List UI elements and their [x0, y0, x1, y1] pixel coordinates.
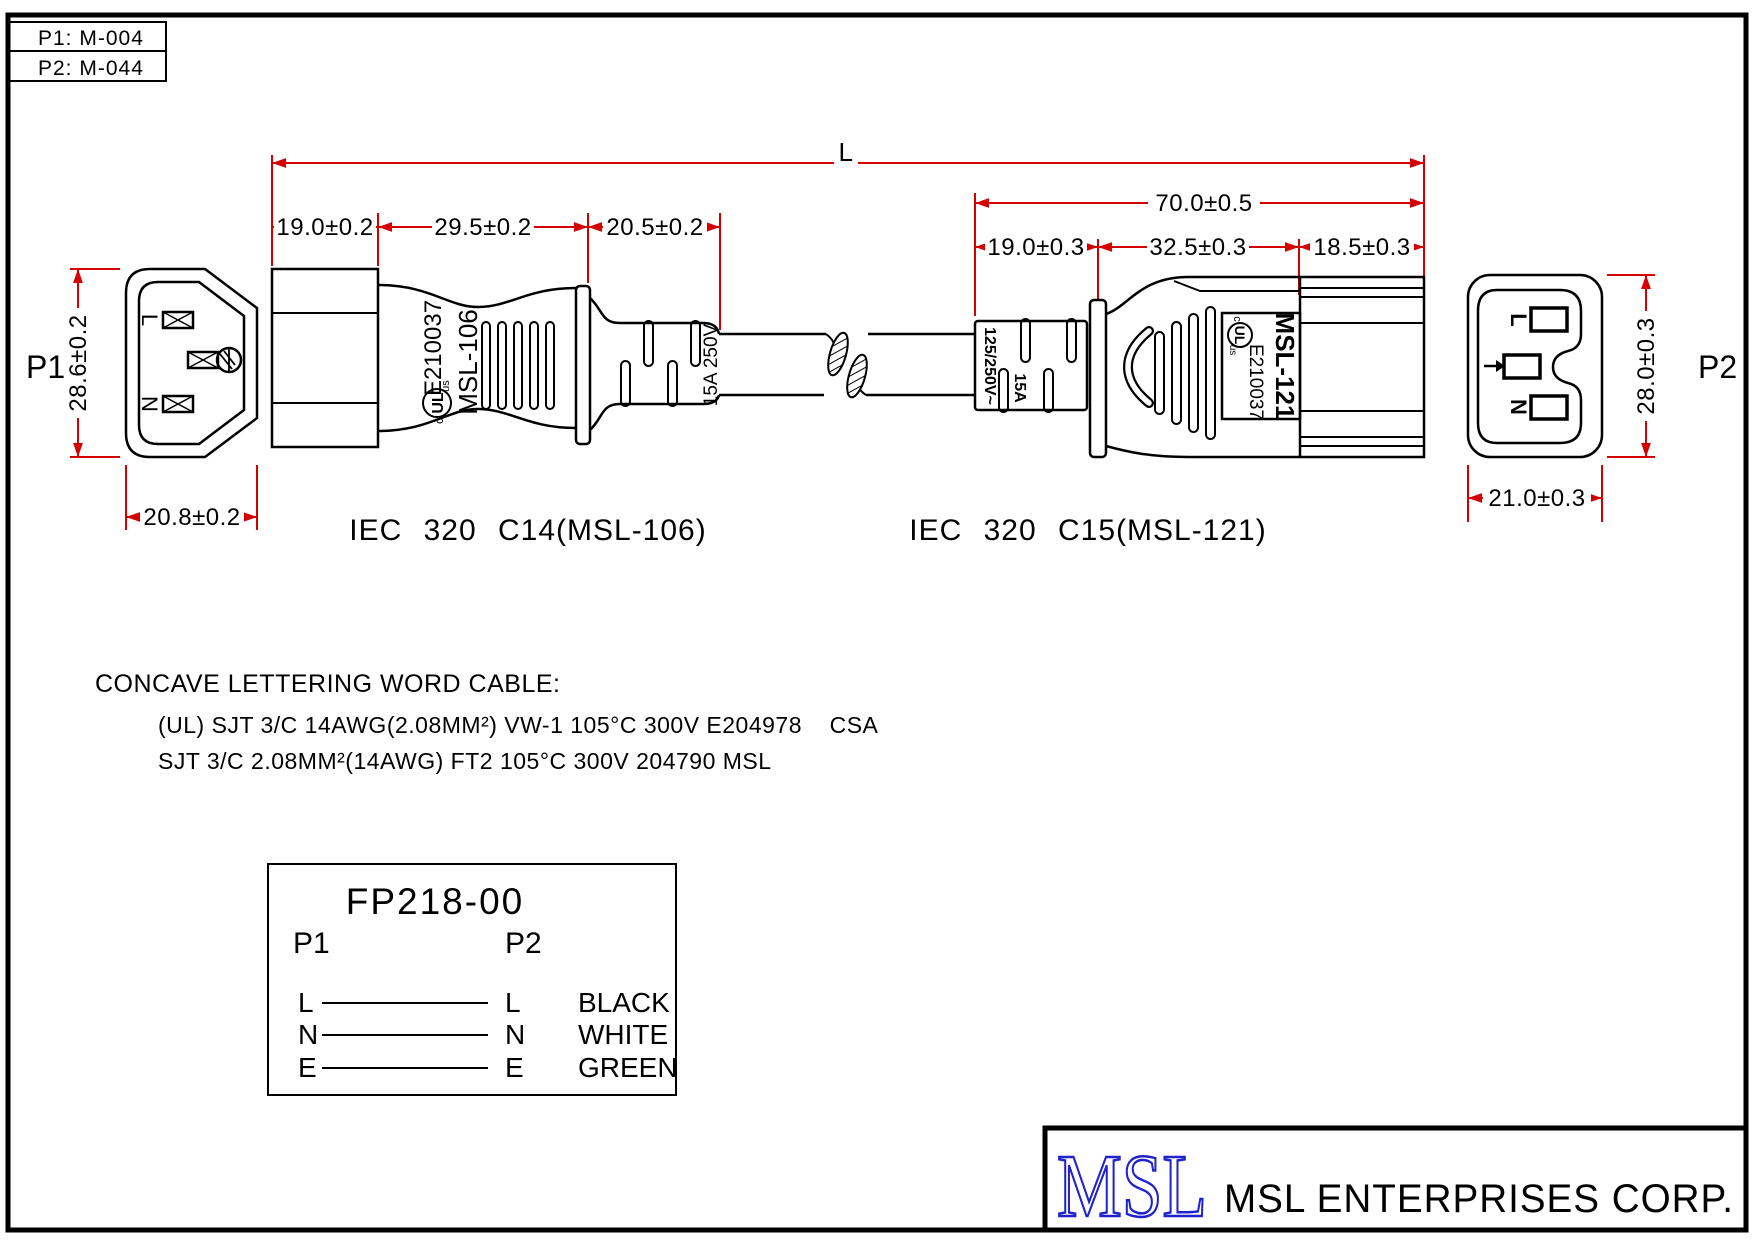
c15-face-lines [1300, 288, 1424, 446]
c15-cert-marking: E210037 [1245, 344, 1266, 420]
cable-lettering-note: CONCAVE LETTERING WORD CABLE: (UL) SJT 3… [95, 670, 879, 774]
c15-strain-slot [1021, 319, 1030, 362]
p2-pin-label-neutral: N [1506, 399, 1531, 415]
p1-ref-text: P1: M-004 [38, 27, 144, 50]
wiring-color: BLACK [578, 987, 670, 1018]
dim-p2-height-group: 28.0±0.3 [1633, 311, 1660, 421]
dim-c15-seg2: 32.5±0.3 [1149, 234, 1246, 261]
c14-grip-rib [530, 322, 538, 409]
wiring-col1-header: P1 [293, 927, 330, 960]
c15-grip-rib [1155, 332, 1164, 414]
p1-pin-label-live: L [137, 314, 162, 326]
p2-ref-text: P2: M-044 [38, 57, 144, 80]
p2-face-view: P2 L N [1468, 275, 1737, 457]
p2-hole-live [1531, 308, 1567, 331]
c15-grip-rib [1172, 322, 1181, 424]
company-name: MSL ENTERPRISES CORP. [1224, 1177, 1734, 1221]
c14-rating-marking: 15A 250V [701, 323, 722, 406]
wiring-to: E [505, 1052, 524, 1083]
c14-grip-rib [514, 322, 522, 409]
dim-c15-overall: 70.0±0.5 [1155, 190, 1252, 217]
c15-mating-face [1300, 277, 1424, 457]
c14-face-lines [272, 313, 378, 403]
ul-us-text: us [1227, 345, 1238, 356]
dim-c15-seg3: 18.5±0.3 [1313, 234, 1410, 261]
wiring-color: GREEN [578, 1052, 678, 1083]
wiring-col2-header: P2 [505, 927, 542, 960]
dim-c14-seg2: 29.5±0.2 [434, 214, 531, 241]
wiring-row-live: L L BLACK [298, 987, 670, 1018]
dim-c14-seg1: 19.0±0.2 [276, 214, 373, 241]
c15-grip-rib [1189, 314, 1198, 432]
c15-rating-voltage-marking: 125/250V~ [981, 327, 998, 405]
c15-plug-side-view: 125/250V~ 15A c UL us E210037 MSL-121 [975, 277, 1424, 457]
p1-pin-label-neutral: N [137, 396, 162, 412]
c14-strain-slot [644, 321, 653, 366]
cable-note-line1: (UL) SJT 3/C 14AWG(2.08MM²) VW-1 105°C 3… [158, 712, 879, 738]
c15-strain-slot [999, 369, 1008, 412]
c15-model-marking: MSL-121 [1270, 313, 1300, 420]
drawing-sheet: P1: M-004 P2: M-044 L 70.0±0.5 19.0±0.2 … [0, 0, 1754, 1240]
ul-core-text: UL [1232, 326, 1248, 345]
part-reference-block: P1: M-004 P2: M-044 [8, 22, 166, 81]
c15-parting-line [1174, 281, 1300, 291]
dimension-lines: L 70.0±0.5 19.0±0.2 29.5±0.2 20.5±0.2 19… [65, 137, 1660, 531]
earth-symbol-icon [217, 348, 241, 372]
c15-grip-rib [1206, 307, 1215, 439]
p1-outer-outline [126, 269, 257, 457]
ground-arrow-icon [1484, 360, 1505, 372]
p1-label: P1 [26, 349, 65, 385]
cable-break-icon [824, 331, 871, 400]
c14-grip-rib [546, 322, 554, 409]
c14-strain-slot [691, 321, 700, 366]
c14-flange [576, 286, 590, 444]
dim-p1-height-group: 28.6±0.2 [65, 308, 92, 418]
c14-strain-slot [668, 361, 677, 406]
wiring-table: FP218-00 P1 P2 L L BLACK N N WHITE E E G… [268, 864, 678, 1095]
c15-body-top [1106, 277, 1300, 314]
wiring-row-neutral: N N WHITE [298, 1019, 668, 1050]
ul-core-text: UL [430, 392, 447, 414]
p2-pin-label-live: L [1506, 313, 1531, 326]
c15-flange [1090, 300, 1106, 457]
part-number: FP218-00 [346, 881, 525, 922]
ul-us-text: us [440, 380, 452, 392]
wiring-from: N [298, 1019, 318, 1050]
c15-strain-slot [1044, 369, 1053, 412]
p1-face-view: P1 L N [26, 269, 257, 457]
ul-c-text: c [432, 418, 446, 424]
c15-strain-slot [1067, 319, 1076, 362]
wiring-from: L [298, 987, 314, 1018]
ul-c-text: c [1231, 316, 1243, 322]
cable-note-title: CONCAVE LETTERING WORD CABLE: [95, 670, 561, 698]
p2-hole-earth [1504, 355, 1540, 378]
dim-c14-seg3: 20.5±0.2 [606, 214, 703, 241]
wiring-to: L [505, 987, 521, 1018]
c14-mating-face [272, 269, 378, 447]
dim-c15-seg1: 19.0±0.3 [987, 234, 1084, 261]
c15-body-bottom [1106, 446, 1300, 457]
wiring-row-earth: E E GREEN [298, 1052, 678, 1083]
c15-caption: IEC 320 C15(MSL-121) [909, 514, 1266, 547]
c14-strain-slot [621, 361, 630, 406]
dim-p2-height: 28.0±0.3 [1633, 317, 1660, 414]
p2-hole-neutral [1531, 396, 1567, 419]
wiring-to: N [505, 1019, 525, 1050]
dim-overall-length: L [839, 137, 854, 167]
c14-caption: IEC 320 C14(MSL-106) [349, 514, 706, 547]
c14-plug-side-view: E210037 MSL-106 c UL us 15A 250V [272, 269, 722, 447]
wiring-color: WHITE [578, 1019, 668, 1050]
p2-label: P2 [1698, 349, 1737, 385]
title-block: MSL MSL ENTERPRISES CORP. [1045, 1128, 1746, 1236]
wiring-from: E [298, 1052, 317, 1083]
extension-lines [70, 155, 1655, 530]
dim-p1-height: 28.6±0.2 [65, 314, 92, 411]
c14-body-top [378, 285, 576, 307]
c15-rating-current-marking: 15A [1011, 373, 1028, 403]
c14-model-marking: MSL-106 [453, 309, 483, 415]
c14-strain-relief-bottom [590, 395, 719, 430]
cable-note-line2: SJT 3/C 2.08MM²(14AWG) FT2 105°C 300V 20… [158, 748, 772, 774]
c14-grip-rib [482, 322, 490, 409]
dim-p2-width: 21.0±0.3 [1488, 485, 1585, 512]
drawing-canvas: P1: M-004 P2: M-044 L 70.0±0.5 19.0±0.2 … [0, 0, 1754, 1240]
c14-grip-rib [498, 322, 506, 409]
msl-logo: MSL [1057, 1137, 1207, 1236]
cable [719, 331, 975, 400]
dim-p1-width: 20.8±0.2 [143, 504, 240, 531]
